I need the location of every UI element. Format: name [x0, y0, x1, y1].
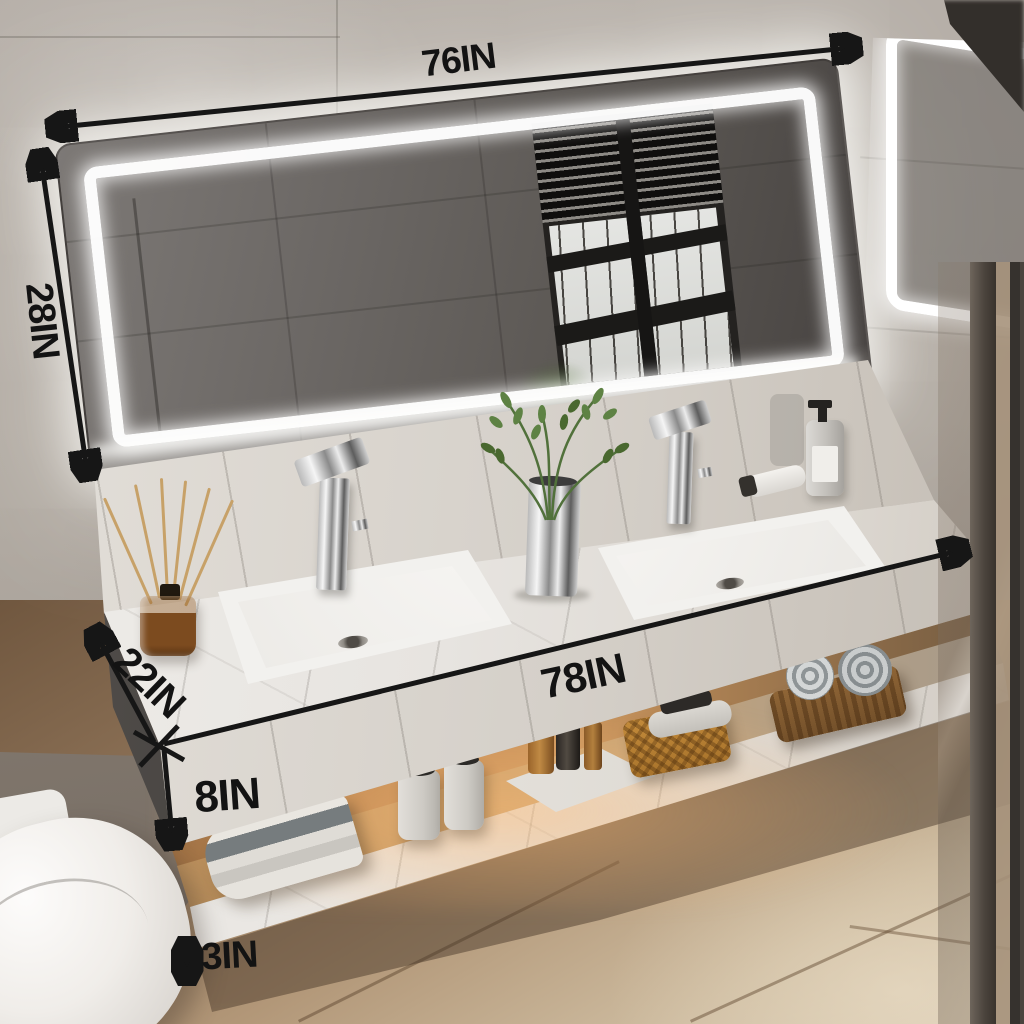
- dim-label-mirror-height: 28IN: [17, 281, 67, 361]
- dim-label-counter-depth: 22IN: [105, 639, 193, 727]
- bathroom-vanity-product-photo: 76IN 28IN 78IN 22IN 8IN 3IN: [0, 0, 1024, 1024]
- dim-line-counter-width: [164, 549, 966, 744]
- dim-label-counter-thickness: 8IN: [193, 769, 262, 822]
- dim-cross-mark: [134, 726, 184, 766]
- dim-line-counter-thickness: [164, 750, 173, 846]
- dim-label-mirror-width: 76IN: [419, 35, 498, 85]
- dimension-annotations: 76IN 28IN 78IN 22IN 8IN 3IN: [0, 0, 1024, 1024]
- dim-label-shelf-thickness: 3IN: [200, 934, 258, 979]
- dim-label-counter-width: 78IN: [537, 644, 630, 708]
